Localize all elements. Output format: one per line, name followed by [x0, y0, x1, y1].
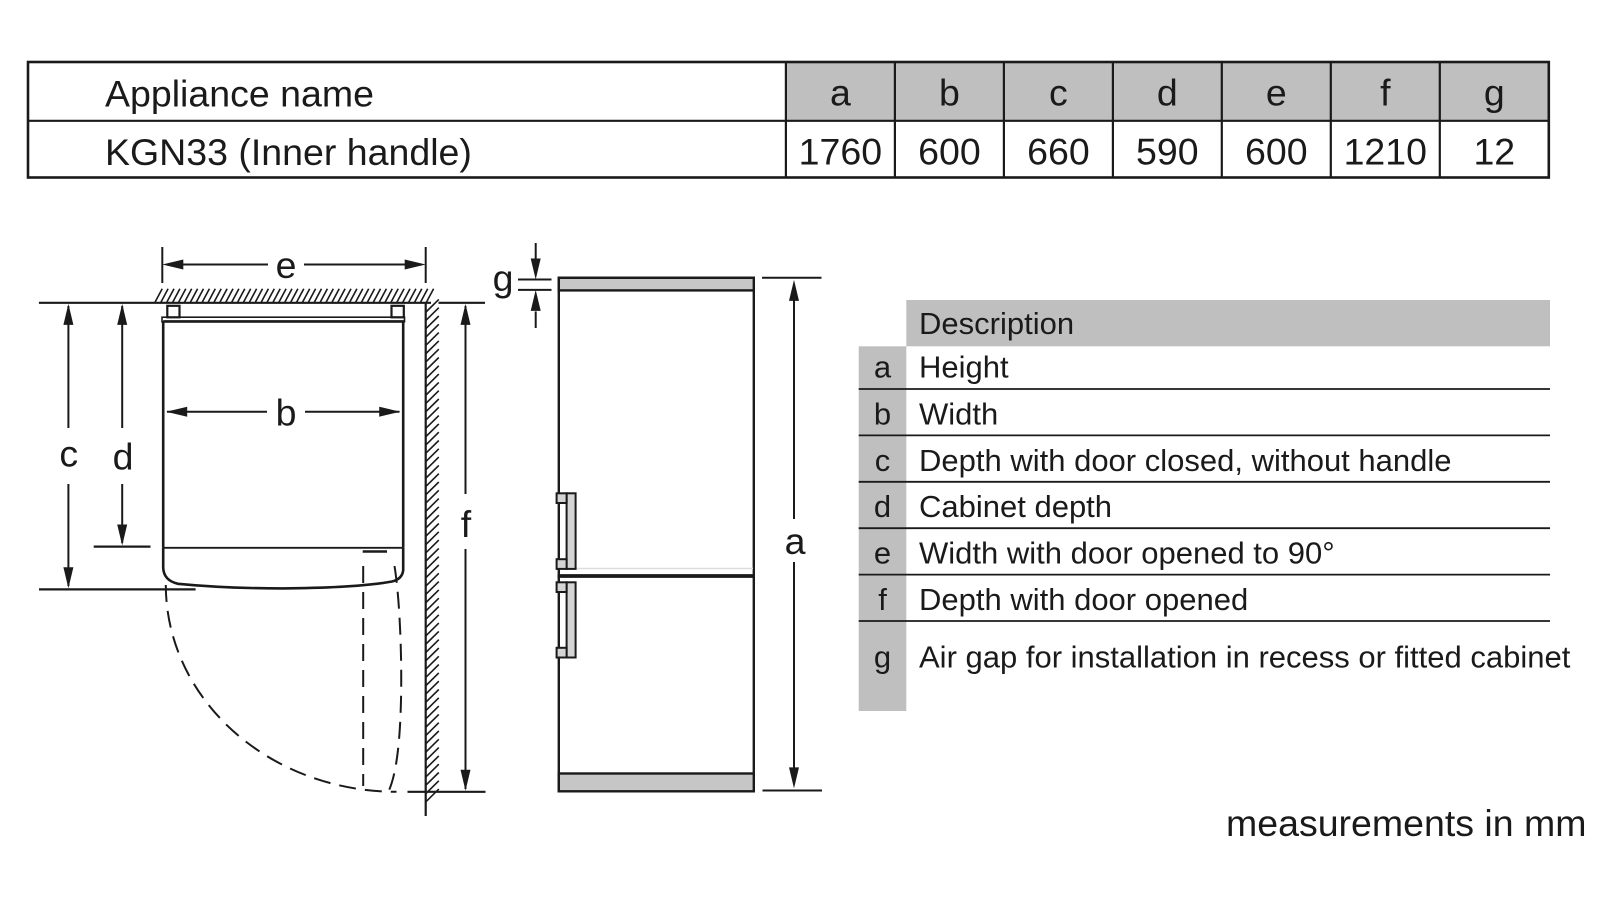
- svg-text:Cabinet depth: Cabinet depth: [919, 489, 1112, 524]
- svg-text:g: g: [493, 257, 514, 299]
- svg-text:e: e: [1266, 72, 1287, 114]
- svg-text:KGN33 (Inner handle): KGN33 (Inner handle): [105, 131, 472, 173]
- svg-text:1210: 1210: [1344, 131, 1427, 173]
- svg-text:f: f: [461, 503, 472, 545]
- svg-text:g: g: [1484, 72, 1505, 114]
- svg-text:e: e: [276, 244, 297, 286]
- svg-text:660: 660: [1027, 131, 1090, 173]
- svg-text:g: g: [874, 639, 891, 674]
- svg-text:c: c: [875, 443, 891, 478]
- svg-text:Depth with door closed, withou: Depth with door closed, without handle: [919, 443, 1452, 478]
- svg-text:d: d: [1157, 72, 1178, 114]
- svg-text:a: a: [830, 72, 851, 114]
- svg-text:b: b: [276, 392, 297, 434]
- svg-text:Height: Height: [919, 350, 1009, 385]
- svg-text:e: e: [874, 536, 891, 571]
- svg-text:Width: Width: [919, 396, 998, 431]
- svg-text:590: 590: [1136, 131, 1199, 173]
- svg-text:Description: Description: [919, 306, 1074, 341]
- svg-text:c: c: [1049, 72, 1068, 114]
- svg-text:600: 600: [918, 131, 981, 173]
- svg-text:d: d: [113, 435, 134, 477]
- svg-text:Depth with door opened: Depth with door opened: [919, 582, 1248, 617]
- svg-text:a: a: [785, 520, 806, 562]
- svg-text:measurements in mm: measurements in mm: [1226, 802, 1587, 844]
- svg-text:a: a: [874, 350, 892, 385]
- svg-text:b: b: [874, 396, 891, 431]
- svg-text:f: f: [1380, 72, 1391, 114]
- svg-text:f: f: [878, 582, 887, 617]
- svg-text:d: d: [874, 489, 891, 524]
- svg-text:Appliance name: Appliance name: [105, 73, 374, 115]
- svg-text:b: b: [939, 72, 960, 114]
- svg-text:1760: 1760: [799, 131, 882, 173]
- svg-text:600: 600: [1245, 131, 1308, 173]
- svg-text:Width with door opened to 90°: Width with door opened to 90°: [919, 536, 1335, 571]
- svg-text:Air gap for installation in re: Air gap for installation in recess or fi…: [919, 639, 1571, 674]
- svg-text:c: c: [59, 432, 78, 474]
- svg-text:12: 12: [1473, 131, 1515, 173]
